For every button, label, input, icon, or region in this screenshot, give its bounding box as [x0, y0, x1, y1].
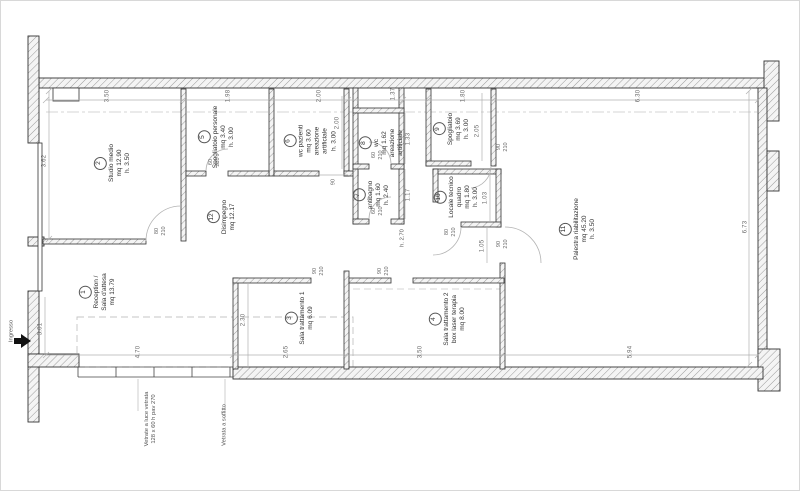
dim-left-2: 3.01 — [37, 323, 45, 335]
note-ceiling-glazing: Vetrata a soffitto — [221, 404, 228, 446]
dim-room8-height: 1.33 — [405, 133, 413, 145]
dim-top-6: 6.30 — [635, 90, 643, 102]
room-4-trattamento2-label: 4 Sala trattamento 2 box laser terapia m… — [429, 292, 467, 345]
room-9-number: 9 — [433, 123, 446, 136]
dim-room6-height: 2.00 — [334, 117, 342, 129]
room-2-number: 2 — [94, 157, 107, 170]
room-11-palestra-label: 11 Palestra riabilitazione mq 45.20 h. 3… — [559, 198, 597, 260]
floor-plan: 1 Reception / Sala d'attesa mq 13.79 2 S… — [0, 0, 800, 491]
room-2-studio-label: 2 Studio medio mq 12.90 h. 3.50 — [94, 144, 132, 182]
room-10-number: 10 — [434, 191, 447, 204]
door-label-room7: 60210 — [371, 206, 385, 215]
dim-room3-height: 2.30 — [240, 314, 248, 326]
room-8-number: 8 — [359, 137, 372, 150]
dim-palestra-door: 1.05 — [479, 240, 487, 252]
door-label-room4: 90210 — [377, 266, 391, 275]
room-3-number: 3 — [285, 312, 298, 325]
dim-top-4: 1.37 — [390, 88, 398, 100]
dim-left-1: 3.62 — [41, 155, 49, 167]
door-label-palestra: 90210 — [496, 239, 510, 248]
door-label-room9: 90210 — [496, 142, 510, 151]
dim-right-1: 6.73 — [742, 221, 750, 233]
room-12-disimpegno-label: 12 Disimpegno mq 12.17 — [207, 200, 237, 234]
dim-top-2: 1.98 — [225, 90, 233, 102]
note-height-corridor: h. 2.70 — [399, 229, 406, 247]
dim-top-1: 3.50 — [104, 90, 112, 102]
room-3-trattamento1-label: 3 Sala trattamento 1 mq 6.09 — [285, 291, 315, 344]
dim-top-3: 2.00 — [316, 90, 324, 102]
dim-room10-height: 1.03 — [482, 192, 490, 204]
door-label-room3: 90210 — [312, 266, 326, 275]
note-glazing: Vetrate a luce vetrata 128 x 60 h pav 27… — [144, 392, 158, 447]
room-1-reception-label: 1 Reception / Sala d'attesa mq 13.79 — [79, 273, 117, 310]
room-12-number: 12 — [207, 211, 220, 224]
room-5-number: 5 — [198, 131, 211, 144]
pilaster — [53, 88, 79, 101]
entrance-label: Ingresso — [8, 320, 15, 342]
room-11-number: 11 — [559, 223, 572, 236]
room-6-number: 6 — [284, 135, 297, 148]
dim-bottom-3: 3.50 — [417, 346, 425, 358]
dim-room7-height: 1.17 — [405, 189, 413, 201]
room-1-number: 1 — [79, 286, 92, 299]
door-label-room8: 60210 — [371, 150, 385, 159]
dim-top-5: 1.80 — [460, 90, 468, 102]
dim-bottom-2: 2.65 — [283, 346, 291, 358]
opening-label-room6: 90 — [331, 179, 338, 185]
room-4-number: 4 — [429, 313, 442, 326]
dim-bottom-1: 4.70 — [135, 346, 143, 358]
glazing-strip — [78, 367, 233, 377]
dim-room9-height: 2.05 — [474, 125, 482, 137]
room-10-locale-tecnico-label: 10 Locale tecnico quadro mq 1.80 h. 3.00 — [434, 176, 481, 218]
room-7-antibagno-label: 7 antibagno mq 1.60 h. 2.40 — [353, 181, 391, 210]
room-9-spogliatoio-label: 9 Spogliatoio mq 3.69 h. 3.00 — [433, 113, 471, 145]
door-label-room10: 80210 — [444, 227, 458, 236]
door-label-room5: 60210 — [208, 157, 222, 166]
room-7-number: 7 — [353, 189, 366, 202]
dim-bottom-4: 5.94 — [627, 346, 635, 358]
door-label-room2: 80210 — [154, 226, 168, 235]
room-6-wc-pazienti-label: 6 wc pazienti mq 3.60 areazione artifici… — [284, 125, 339, 157]
